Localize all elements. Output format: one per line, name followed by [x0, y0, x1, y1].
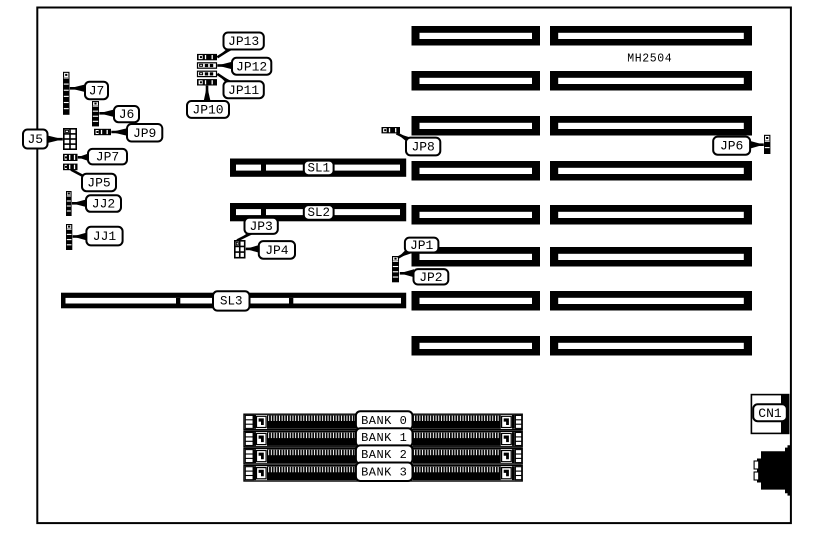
- svg-text:JP8: JP8: [411, 140, 434, 155]
- svg-text:BANK 1: BANK 1: [361, 431, 407, 445]
- svg-text:BANK 0: BANK 0: [361, 414, 407, 428]
- svg-text:JP6: JP6: [720, 139, 743, 154]
- svg-text:JP13: JP13: [228, 34, 259, 49]
- svg-text:JP11: JP11: [228, 83, 259, 98]
- svg-text:J5: J5: [27, 132, 43, 147]
- svg-text:JP7: JP7: [96, 150, 119, 165]
- svg-text:JP10: JP10: [192, 102, 223, 117]
- svg-text:JP2: JP2: [419, 270, 442, 285]
- svg-text:SL2: SL2: [307, 206, 330, 220]
- svg-text:SL1: SL1: [307, 161, 330, 175]
- svg-text:MH2504: MH2504: [627, 53, 672, 66]
- svg-text:BANK 3: BANK 3: [361, 465, 407, 479]
- svg-text:JJ2: JJ2: [92, 197, 115, 212]
- svg-text:JP4: JP4: [265, 243, 289, 258]
- svg-text:J7: J7: [89, 83, 105, 98]
- svg-text:JP3: JP3: [249, 219, 272, 234]
- svg-text:JP1: JP1: [410, 238, 434, 253]
- svg-text:J6: J6: [119, 107, 135, 122]
- svg-text:JP12: JP12: [236, 59, 267, 74]
- svg-text:BANK 2: BANK 2: [361, 448, 407, 462]
- svg-text:JJ1: JJ1: [93, 229, 117, 244]
- svg-text:JP9: JP9: [133, 126, 156, 141]
- svg-text:JP5: JP5: [87, 175, 110, 190]
- svg-text:CN1: CN1: [758, 406, 782, 421]
- svg-text:SL3: SL3: [220, 294, 243, 308]
